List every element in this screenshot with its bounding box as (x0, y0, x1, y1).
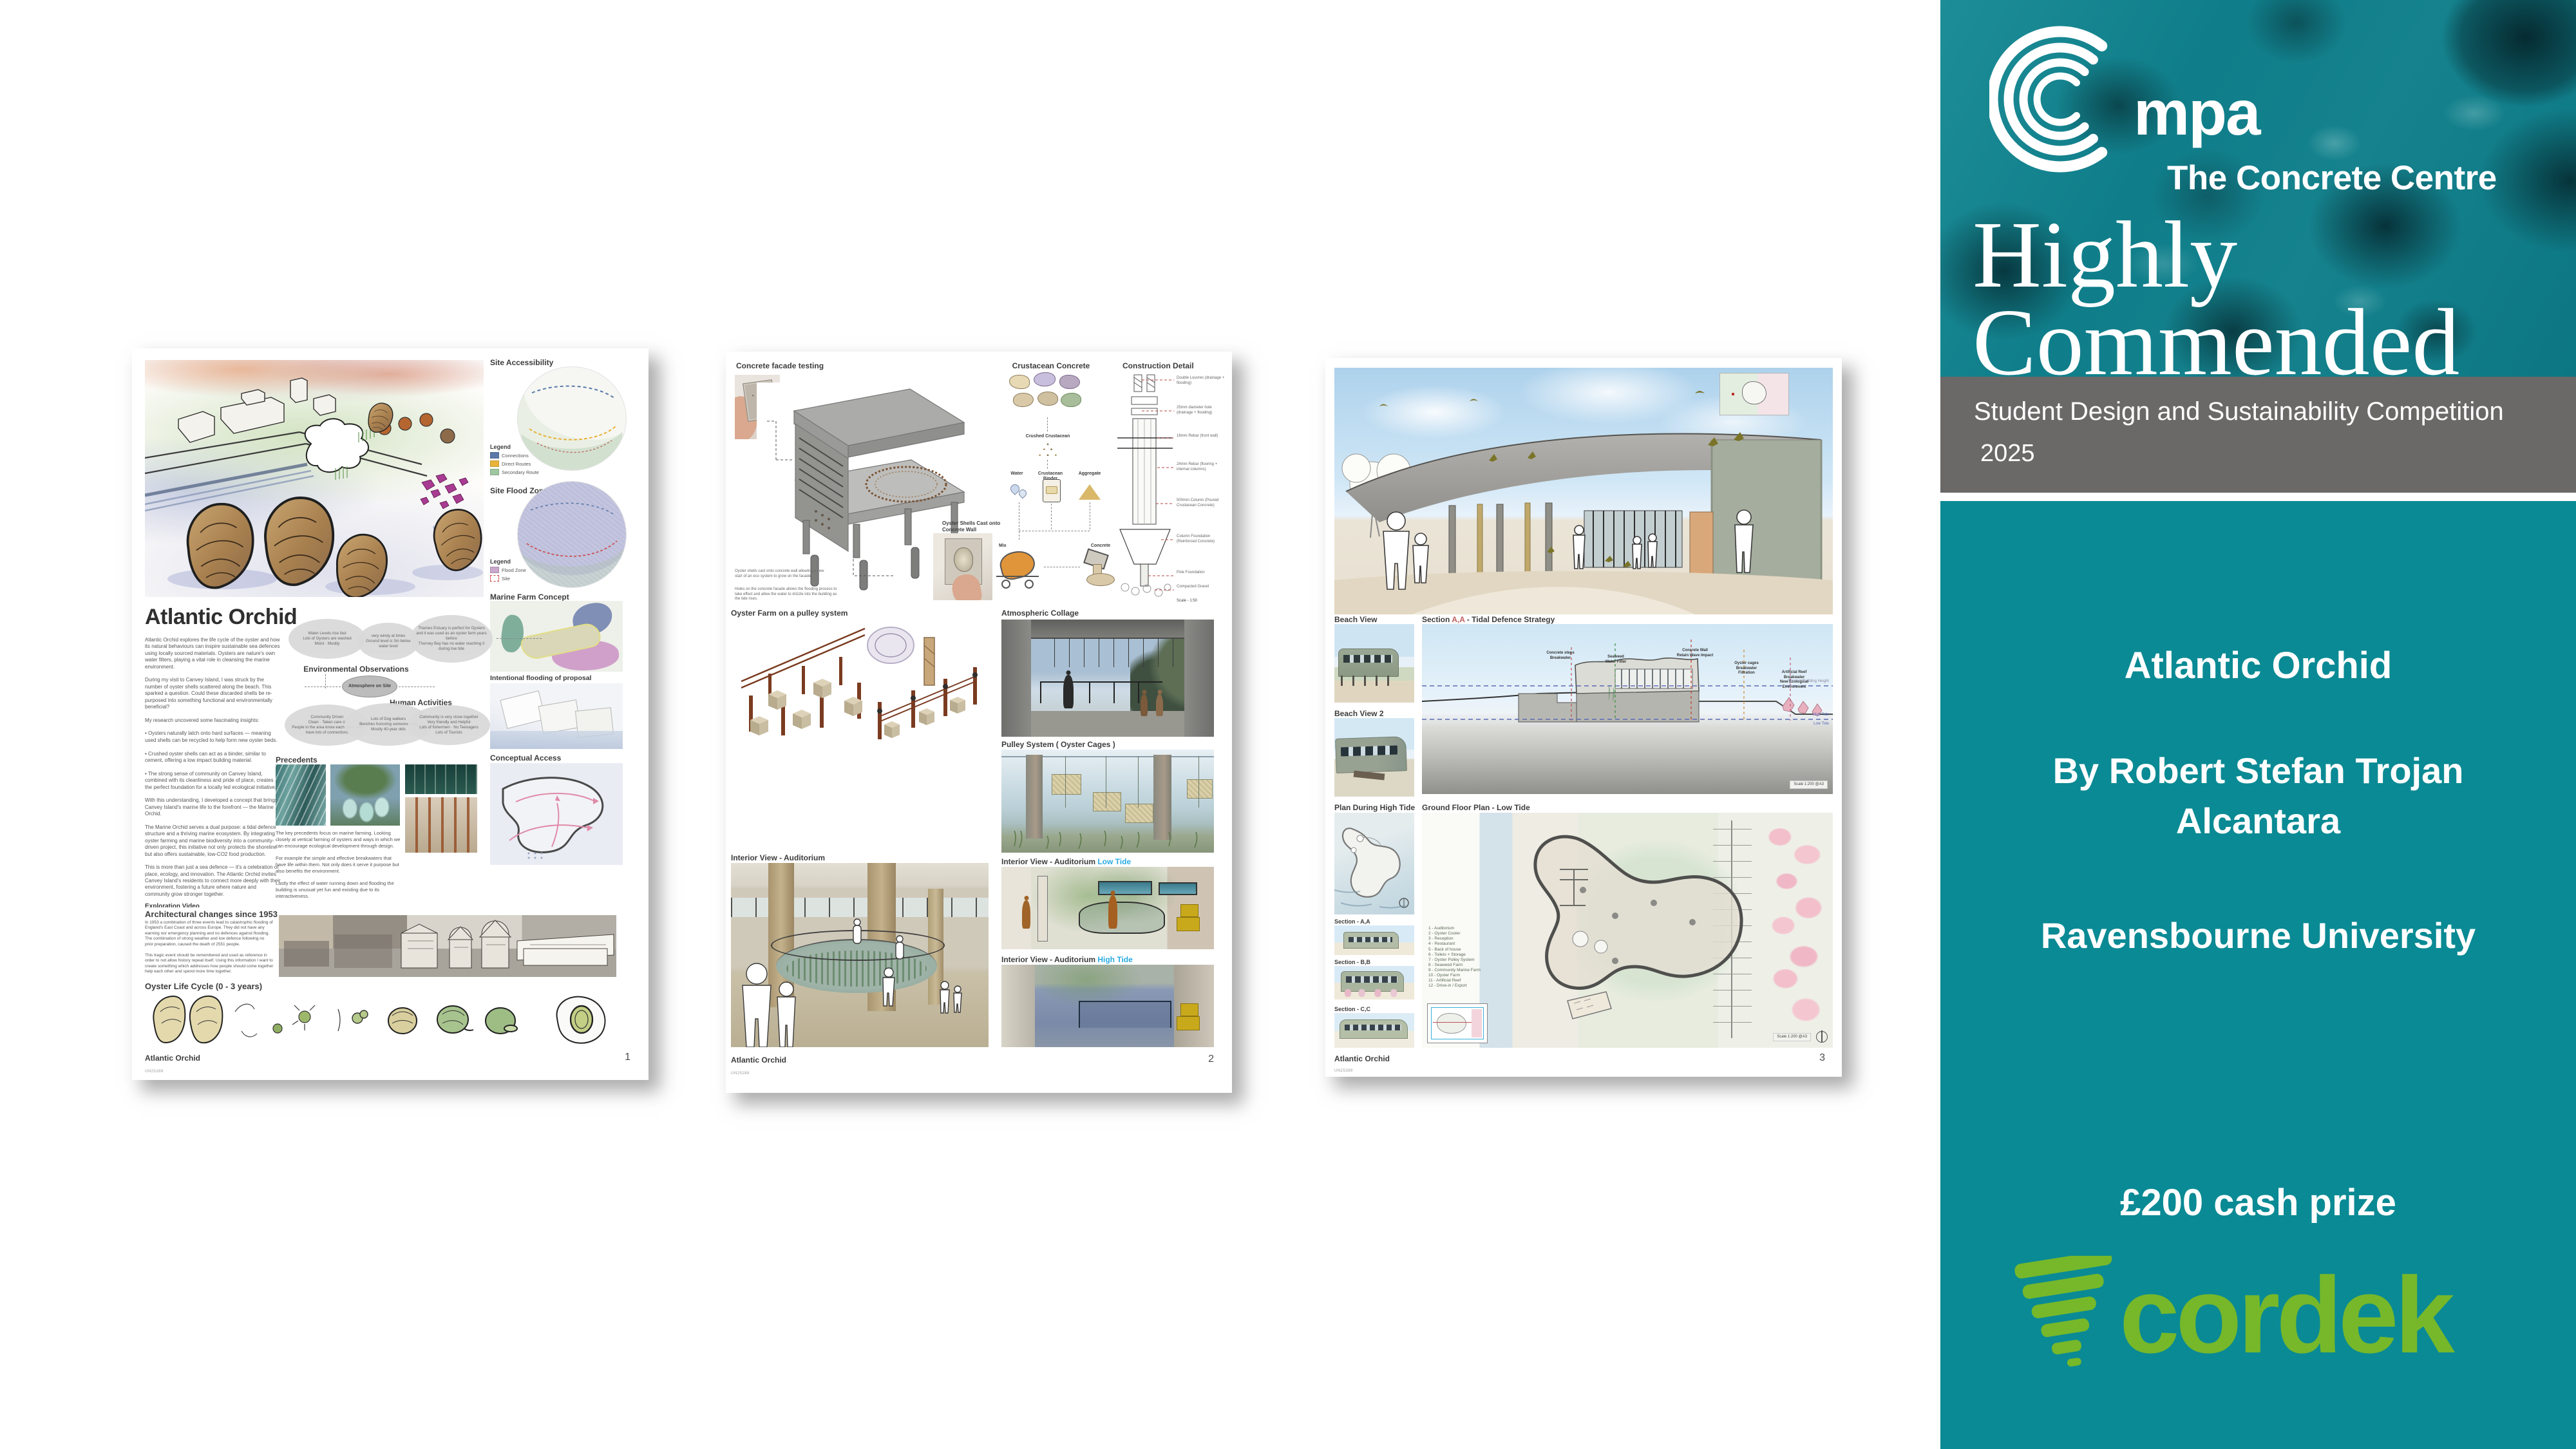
precedents-text: The key precedents focus on marine farmi… (276, 830, 402, 900)
atmosphere-on-site-node: Atmosphere on Site (342, 676, 397, 697)
plan-legend: 1 - Auditorium 2 - Oyster Cooler 3 - Rec… (1428, 926, 1506, 989)
collage-frame-right (1184, 620, 1214, 737)
high-rail (1079, 1001, 1171, 1028)
intentional-flooding-title: Intentional flooding of proposal (490, 674, 591, 682)
section-aa-thumb (1334, 925, 1414, 955)
construction-detail-title: Construction Detail (1122, 362, 1194, 371)
low-crates-2 (1180, 904, 1198, 917)
facade-testing-title: Concrete facade testing (736, 362, 824, 371)
oyster-farm-isometric (731, 620, 989, 746)
exterior-render (1334, 368, 1833, 614)
farm-dash-line (497, 638, 542, 639)
ground-floor-plan-title: Ground Floor Plan - Low Tide (1422, 804, 1530, 813)
section-cc-thumb (1334, 1013, 1414, 1048)
competition-title: Student Design and Sustainability Compet… (1974, 397, 2504, 426)
page: { "colors": { "teal": "#0a8a94", "teal_t… (0, 0, 2576, 1449)
precedent-photo-mangrove (330, 764, 400, 826)
flow-water-down (1019, 502, 1019, 540)
secondary-route-swatch (490, 469, 499, 475)
legend2-item-site: Site (490, 575, 567, 582)
low-tide-accent: Low Tide (1097, 857, 1131, 866)
section-title-ref: A,A (1452, 615, 1464, 624)
mix-label: Mix (999, 544, 1007, 549)
oyster-life-cycle-diagram (145, 992, 616, 1048)
interior-high-prefix: Interior View - Auditorium (1001, 955, 1097, 964)
precedent-photo-oyster-poles (405, 797, 477, 853)
legend2-title: Legend (490, 558, 567, 565)
poster1-page-number: 1 (625, 1052, 630, 1063)
env-observation-bubble-1: Water Levels rise fast Lots of Oysters a… (289, 619, 366, 659)
high-crates-1 (1177, 1016, 1200, 1030)
mixer-icon (996, 550, 1041, 587)
crustacean-concrete-title: Crustacean Concrete (1003, 362, 1099, 371)
conceptual-access-title: Conceptual Access (490, 754, 561, 763)
flow-binder-down (1051, 504, 1052, 529)
project-university: Ravensbourne University (1940, 914, 2576, 956)
legend1-item-secondary-route: Secondary Route (490, 469, 567, 475)
precedents-title: Precedents (276, 756, 317, 765)
pulley-system-title: Pulley System ( Oyster Cages ) (1001, 741, 1115, 750)
ann-wall: Concrete Wall Retain Wave Impact (1672, 649, 1718, 658)
oyster-cast-hand-photo (933, 533, 992, 600)
detail-callout-2: 25mm diameter hole (drainage + flooding) (1177, 406, 1228, 415)
poster1-title: Atlantic Orchid (145, 605, 297, 630)
poster1-intro-text: Atlantic Orchid explores the life cycle … (145, 637, 281, 898)
concrete-centre-logo-text: The Concrete Centre (2167, 158, 2497, 198)
detail-callout-8: Compacted Gravel (1177, 585, 1228, 590)
conceptual-access-diagram (490, 763, 623, 865)
beach-view-image (1334, 624, 1414, 703)
mix-to-concrete-arrow (1044, 567, 1080, 567)
pulley-system-image (1001, 750, 1214, 853)
mpa-logo-text: mpa (2134, 81, 2260, 144)
crustacean-shells (1009, 372, 1086, 415)
atmosphere-connector-left (305, 687, 341, 687)
collage-hanging-lines (1040, 638, 1175, 667)
poster-board-2[interactable]: Concrete facade testing Oyster (726, 352, 1232, 1093)
plan-high-tide-title: Plan During High Tide (1334, 804, 1415, 813)
poster1-left-column: Atlantic Orchid explores the life cycle … (145, 637, 281, 907)
interior-low-tide-title: Interior View - Auditorium Low Tide (1001, 858, 1131, 867)
water-label: Water (1003, 471, 1031, 477)
detail-callout-5: 500mm Column (Poured Crustacean Concrete… (1177, 498, 1228, 508)
arch-changes-text: In 1953 a combination of three events le… (145, 920, 274, 976)
concrete-label: Concrete (1081, 544, 1120, 549)
plan-high-tide-image (1334, 813, 1414, 914)
flow-join (1019, 531, 1090, 531)
arch-changes-title: Architectural changes since 1953 (145, 910, 278, 920)
section-cc-label: Section - C,C (1334, 1006, 1370, 1012)
low-crates-1 (1177, 917, 1200, 931)
poster2-footer-title: Atlantic Orchid (731, 1056, 786, 1065)
competition-band: Student Design and Sustainability Compet… (1940, 377, 2576, 493)
hero-site-sketch (145, 360, 484, 597)
human-activities-bubble-3: Community is very close together Very fr… (408, 705, 490, 745)
water-icon (1010, 482, 1027, 500)
detail-callout-4: 24mm Rebar (flooring + internal columns) (1177, 462, 1228, 472)
facade-note-1: Oyster shells cast onto concrete wall al… (735, 569, 831, 579)
low-figure-2 (1108, 895, 1117, 929)
poster2-page-number: 2 (1208, 1054, 1214, 1065)
section-aa-label: Section - A,A (1334, 918, 1370, 925)
poster3-footer-title: Atlantic Orchid (1334, 1055, 1390, 1064)
poster1-footer-code: UN25288 (145, 1070, 164, 1074)
consent-height-label: Consent Building Height (1784, 679, 1829, 685)
concrete-pour-icon (1083, 551, 1119, 586)
cordek-sponsor-logo: cordek (2005, 1256, 2494, 1378)
legend-2: Legend Flood Zone Site (490, 558, 567, 582)
precedent-photo-underwater-farm (405, 764, 477, 794)
poster-board-1[interactable]: Atlantic Orchid Atlantic Orchid explores… (132, 348, 649, 1080)
collage-frame-top (1031, 620, 1184, 639)
atmospheric-collage-title: Atmospheric Collage (1001, 609, 1079, 618)
low-figure-1 (1022, 900, 1030, 929)
legend1-item-direct-routes: Direct Routes (490, 460, 567, 467)
bv1-stilts (1341, 676, 1395, 686)
flood-water (490, 731, 623, 749)
interior-high-tide-title: Interior View - Auditorium High Tide (1001, 956, 1133, 965)
ann-concrete-steps: Concrete steps Breakwater (1538, 651, 1583, 661)
poster-board-3[interactable]: Beach View Beach View 2 Plan During High… (1325, 358, 1842, 1077)
interior-auditorium-render (731, 863, 989, 1047)
low-window-1 (1098, 881, 1152, 895)
section-title-prefix: Section (1422, 615, 1452, 624)
oyster-farm-title: Oyster Farm on a pulley system (731, 609, 848, 618)
section-title-suffix: - Tidal Defence Strategy (1464, 615, 1555, 624)
high-crates-2 (1180, 1003, 1198, 1016)
detail-callout-6: Column Foundation (Reinforced Concrete) (1177, 535, 1228, 544)
beach-view-title: Beach View (1334, 616, 1377, 625)
high-tide-accent: High Tide (1097, 955, 1132, 964)
collage-frame-left (1001, 620, 1031, 737)
binder-bag-icon (1043, 479, 1061, 502)
project-author-line1: By Robert Stefan Trojan (1940, 750, 2576, 791)
detail-callout-1: Double Louvres (drainage + flooding) (1177, 376, 1228, 386)
tidal-defence-section-drawing: Concrete steps Breakwater Seaweed Water … (1422, 624, 1833, 794)
plan-compass (1816, 1031, 1828, 1043)
detail-callout-3: 16mm Rebar (front wall) (1177, 434, 1228, 439)
competition-year: 2025 (1980, 440, 2035, 468)
marine-farm-concept-map (490, 601, 623, 672)
facade-note-2: Holes on the concrete facade allows the … (735, 587, 838, 602)
plan-key-inset (1427, 1003, 1488, 1043)
bv1-windows (1343, 655, 1392, 663)
low-tank (1079, 902, 1165, 934)
low-window-2 (1159, 882, 1197, 895)
aggregate-pile-icon (1079, 484, 1101, 500)
intentional-flooding-image (490, 683, 623, 749)
prize-text: £200 cash prize (1940, 1181, 2576, 1224)
award-sidebar: mpa The Concrete Centre Highly Commended… (1940, 0, 2576, 1449)
hero-sketch-svg (145, 360, 484, 597)
flood-block-2 (538, 699, 582, 734)
project-author-line2: Alcantara (1940, 800, 2576, 842)
plan-scale-label: Scale 1:200 @A3 (1773, 1033, 1811, 1042)
bv2-ramp (1354, 771, 1385, 781)
ann-seaweed: Seaweed Water Filter (1597, 655, 1634, 665)
crustacean-arrow-1 (1047, 417, 1048, 431)
section-bb-thumb (1334, 966, 1414, 999)
interior-high-tide-image (1001, 965, 1214, 1047)
award-title-line2: Commended (1973, 295, 2459, 390)
project-title: Atlantic Orchid (1940, 644, 2576, 687)
cordek-wordmark: cordek (2119, 1256, 2455, 1376)
crustacean-arrow-2 (1047, 460, 1048, 469)
detail-callout-7: Pole Foundation (1177, 571, 1228, 576)
project-info-panel: Atlantic Orchid By Robert Stefan Trojan … (1940, 501, 2576, 1449)
poster3-footer-code: UN25288 (1334, 1069, 1353, 1073)
site-accessibility-title: Site Accessibility (490, 359, 553, 368)
legend-1: Legend Connections Direct Routes Seconda… (490, 444, 567, 475)
interior-low-prefix: Interior View - Auditorium (1001, 857, 1097, 866)
precedent-photo-breakwater (276, 764, 326, 826)
section-strategy-title: Section A,A - Tidal Defence Strategy (1422, 616, 1555, 625)
ground-floor-plan-image: 1 - Auditorium 2 - Oyster Cooler 3 - Rec… (1422, 813, 1833, 1048)
poster2-footer-code: UN25288 (731, 1072, 750, 1075)
crushed-crustacean-label: Crushed Crustacean (1016, 434, 1080, 439)
legend2-item-flood-zone: Flood Zone (490, 567, 567, 573)
env-observations-title: Environmental Observations (295, 665, 417, 674)
atmospheric-collage-image (1001, 620, 1214, 737)
collage-figure-2 (1141, 694, 1148, 716)
interior-auditorium-title: Interior View - Auditorium (731, 854, 825, 863)
poster3-page-number: 3 (1819, 1052, 1825, 1064)
oyster-life-cycle-title: Oyster Life Cycle (0 - 3 years) (145, 982, 262, 992)
low-wall-pillar (1037, 876, 1048, 942)
collage-figure-3 (1156, 694, 1163, 716)
atmosphere-connector-right (399, 687, 435, 687)
beach-view2-image (1334, 718, 1414, 797)
aggregate-label: Aggregate (1072, 471, 1107, 477)
low-tide-label: Low Tide (1814, 722, 1829, 727)
section-bb-label: Section - B,B (1334, 959, 1370, 965)
crushed-dots (1030, 442, 1066, 459)
ann-cages: Oyster cages Breakwater Filtration (1727, 661, 1766, 676)
render-inset-site-plan (1719, 373, 1789, 415)
legend1-item-connections: Connections (490, 452, 567, 459)
cast-oyster (954, 547, 973, 572)
section-scale-label: Scale 1:200 @A3 (1790, 781, 1828, 790)
legend1-title: Legend (490, 444, 567, 450)
flood-zone-swatch (490, 567, 499, 573)
mpa-logo-arcs-icon (1989, 19, 2127, 180)
connections-swatch (490, 452, 499, 459)
interior-low-tide-image (1001, 867, 1214, 949)
award-title-line1: Highly (1973, 207, 2237, 303)
high-tide-label: High Tide (1813, 713, 1829, 718)
exploration-video-title: Exploration Video (145, 903, 281, 907)
direct-routes-swatch (490, 460, 499, 467)
high-wall-left (1001, 965, 1035, 1047)
oyster-cast-label: Oyster Shells Cast onto Concrete Wall (942, 520, 1019, 533)
poster1-footer-title: Atlantic Orchid (145, 1054, 200, 1063)
bv1-building (1338, 649, 1399, 677)
architecture-montage (279, 915, 616, 977)
collage-figure-1 (1063, 675, 1074, 708)
beach-view2-title: Beach View 2 (1334, 710, 1384, 719)
detail-scale-label: Scale - 1:50 (1177, 599, 1228, 604)
construction-detail-drawing (1116, 371, 1174, 600)
env-observation-bubble-3: Thames Estuary is perfect for Oysters an… (410, 615, 493, 663)
site-swatch (490, 575, 499, 582)
flow-aggregate-down (1090, 502, 1090, 529)
